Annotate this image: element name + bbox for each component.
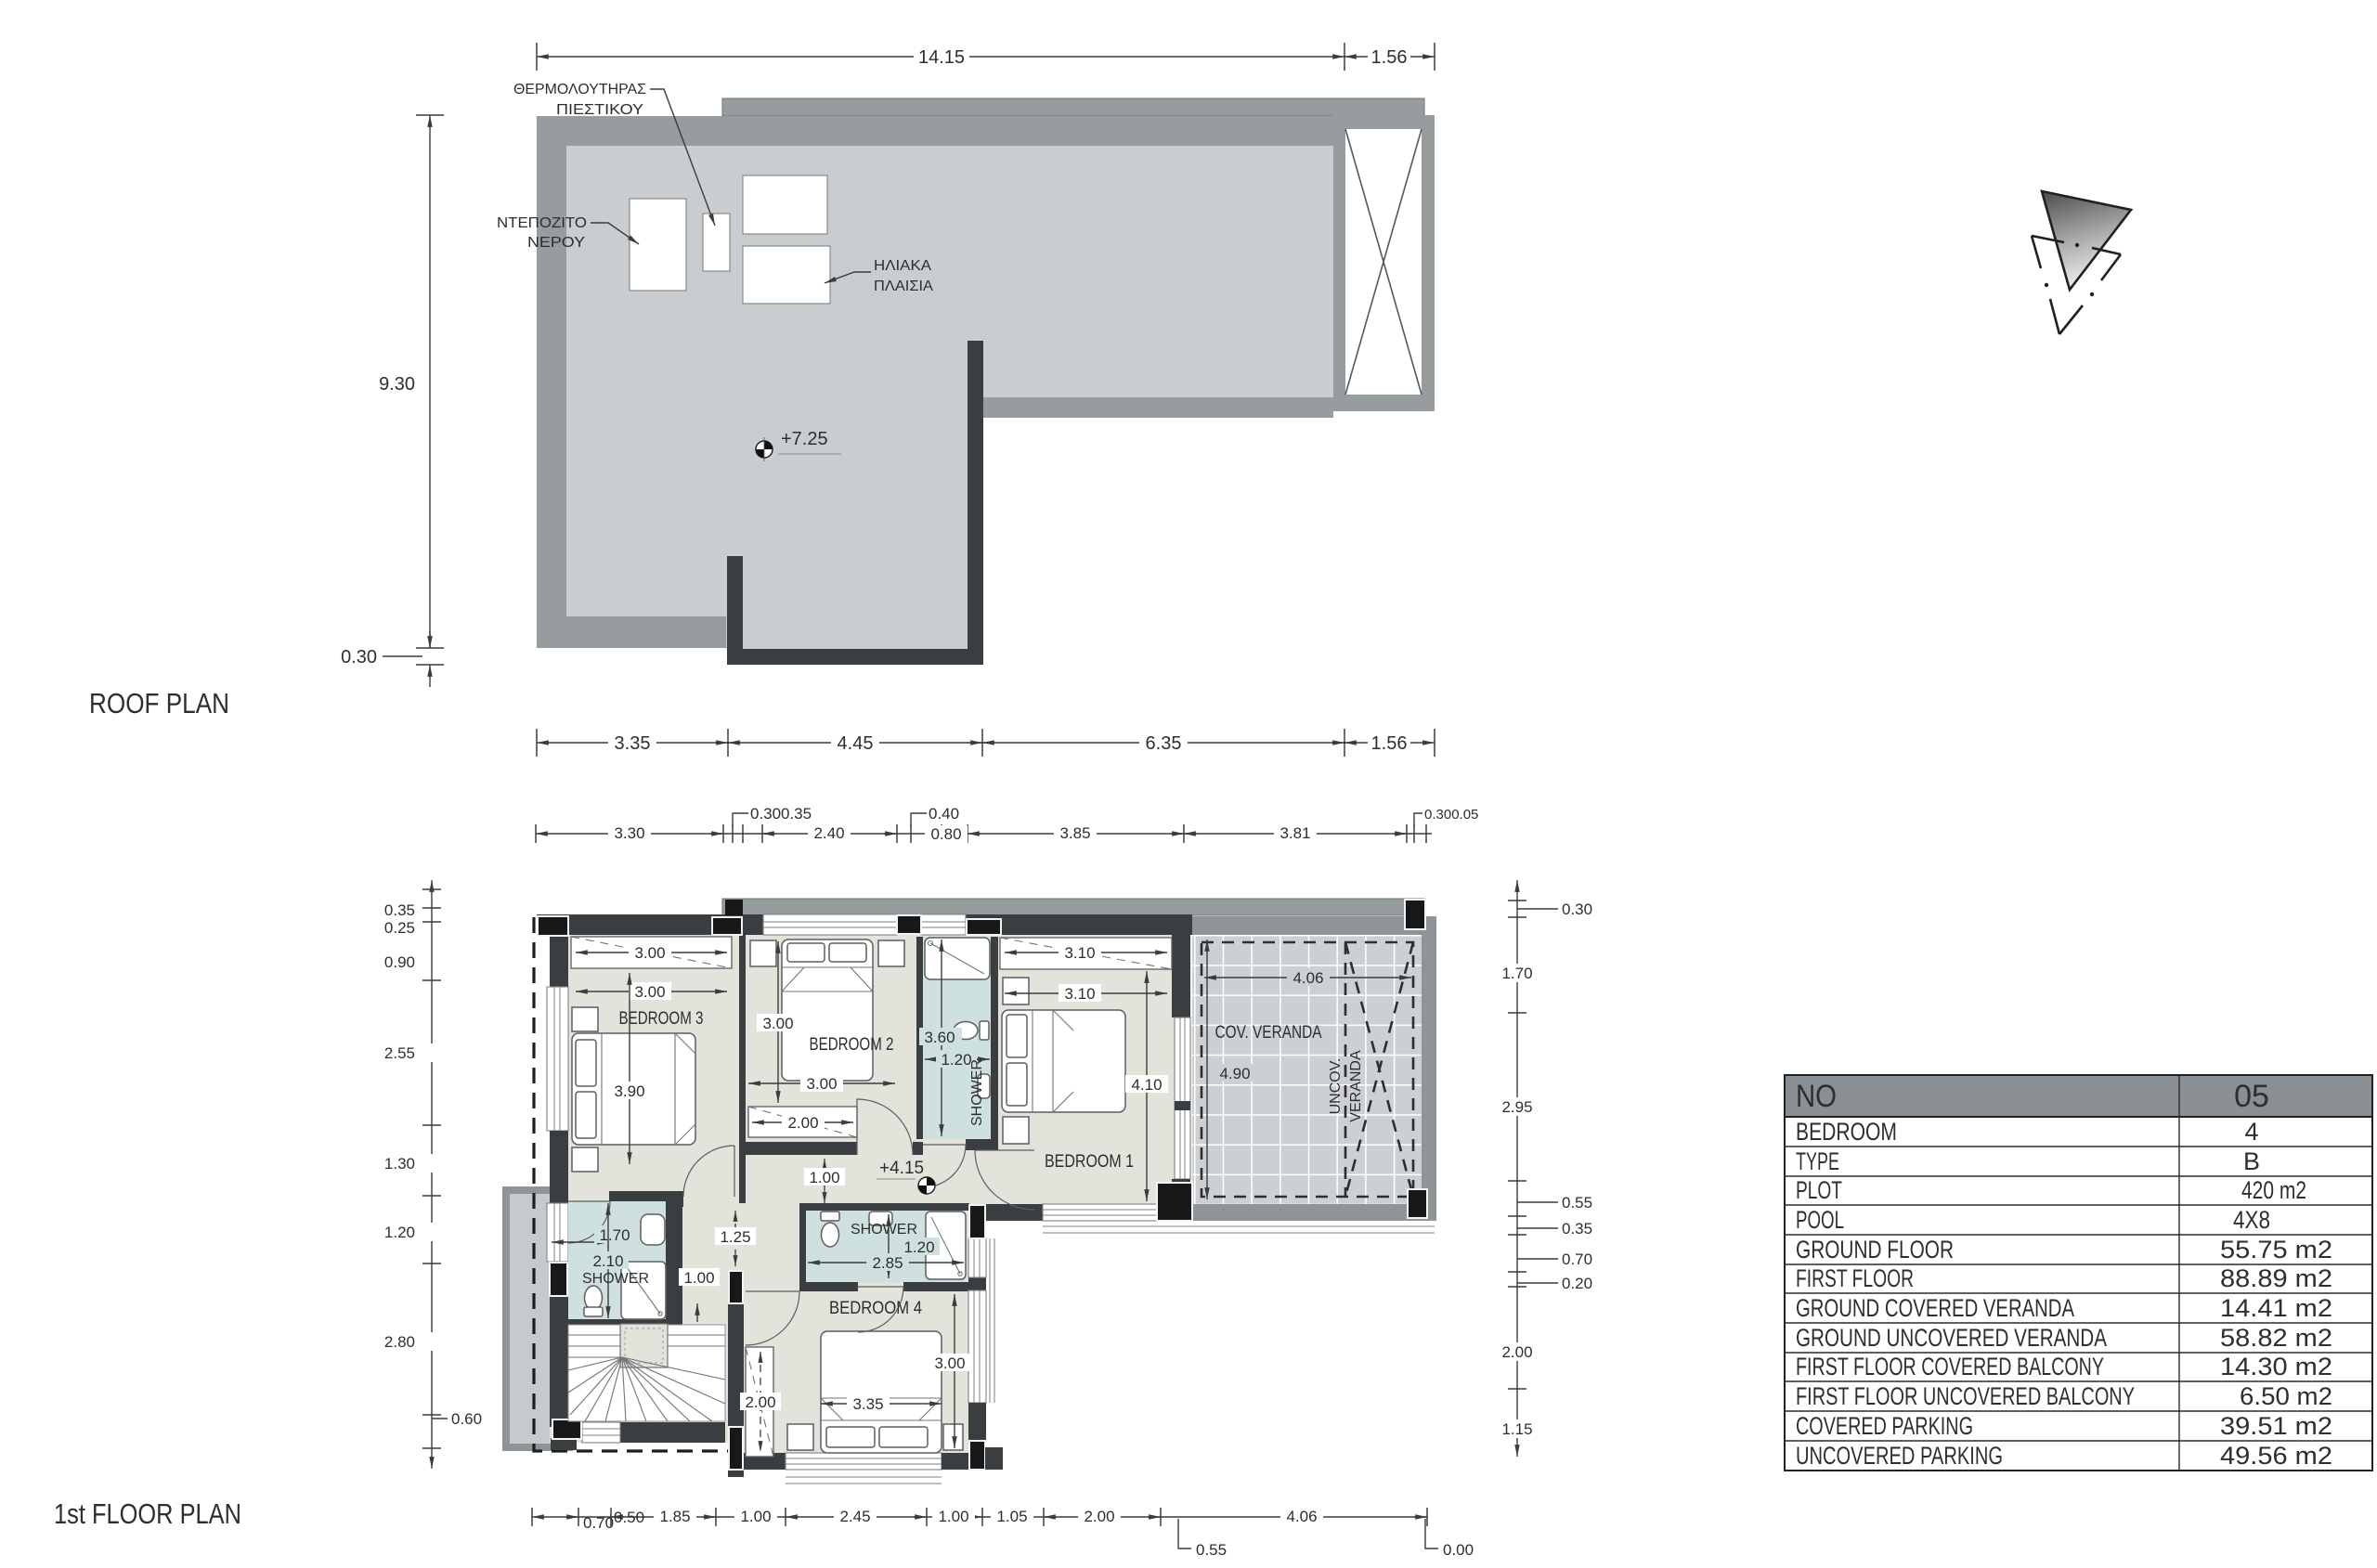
svg-text:+7.25: +7.25 (781, 429, 828, 449)
svg-text:1.15: 1.15 (1501, 1420, 1532, 1438)
svg-text:0.25: 0.25 (384, 919, 415, 937)
svg-text:+4.15: +4.15 (879, 1159, 924, 1178)
svg-text:BEDROOM 2: BEDROOM 2 (810, 1035, 894, 1055)
svg-text:4X8: 4X8 (2233, 1206, 2270, 1234)
svg-text:3.00: 3.00 (634, 944, 665, 962)
svg-text:3.35: 3.35 (615, 733, 651, 754)
svg-text:3.30: 3.30 (614, 824, 644, 842)
svg-text:49.56 m2: 49.56 m2 (2220, 1442, 2332, 1470)
svg-text:ΝΤΕΠΟΖΙΤΟ: ΝΤΕΠΟΖΙΤΟ (497, 215, 587, 231)
svg-text:6.50 m2: 6.50 m2 (2240, 1382, 2332, 1410)
svg-text:0.20: 0.20 (1562, 1275, 1592, 1292)
svg-text:COVERED PARKING: COVERED PARKING (1796, 1412, 1973, 1440)
svg-text:0.70: 0.70 (583, 1514, 614, 1532)
svg-text:SHOWER: SHOWER (851, 1222, 917, 1238)
svg-text:UNCOVERED PARKING: UNCOVERED PARKING (1796, 1442, 2003, 1470)
svg-text:POOL: POOL (1796, 1206, 1844, 1234)
svg-text:0.70: 0.70 (1562, 1251, 1592, 1268)
svg-text:SHOWER: SHOWER (969, 1059, 985, 1126)
svg-text:BEDROOM 1: BEDROOM 1 (1045, 1152, 1134, 1172)
svg-text:1.00: 1.00 (809, 1169, 839, 1186)
svg-text:ΠΛΑΙΣΙΑ: ΠΛΑΙΣΙΑ (874, 279, 933, 294)
svg-text:1.00: 1.00 (938, 1508, 968, 1525)
svg-text:FIRST FLOOR UNCOVERED BALCONY: FIRST FLOOR UNCOVERED BALCONY (1796, 1382, 2135, 1410)
svg-text:ΗΛΙΑΚΑ: ΗΛΙΑΚΑ (874, 258, 931, 274)
svg-text:3.81: 3.81 (1279, 824, 1310, 842)
svg-text:BEDROOM: BEDROOM (1796, 1118, 1897, 1146)
svg-text:14.41 m2: 14.41 m2 (2220, 1294, 2332, 1322)
svg-text:2.00: 2.00 (1084, 1508, 1114, 1525)
svg-text:3.00: 3.00 (634, 983, 665, 1001)
svg-text:PLOT: PLOT (1796, 1176, 1842, 1204)
svg-text:2.10: 2.10 (592, 1252, 623, 1270)
svg-text:3.00: 3.00 (762, 1015, 793, 1032)
svg-text:NO: NO (1796, 1079, 1837, 1114)
svg-text:1st FLOOR PLAN: 1st FLOOR PLAN (54, 1497, 241, 1530)
svg-text:0.55: 0.55 (1196, 1541, 1227, 1559)
svg-text:2.45: 2.45 (839, 1508, 870, 1525)
svg-text:4: 4 (2244, 1118, 2258, 1146)
svg-text:2.55: 2.55 (384, 1044, 415, 1062)
svg-text:COV. VERANDA: COV. VERANDA (1215, 1023, 1322, 1043)
svg-text:55.75 m2: 55.75 m2 (2220, 1236, 2332, 1263)
svg-text:2.80: 2.80 (384, 1333, 415, 1351)
svg-text:0.35: 0.35 (781, 805, 812, 823)
svg-text:0.300.05: 0.300.05 (1424, 807, 1478, 823)
svg-text:3.90: 3.90 (614, 1082, 644, 1100)
svg-text:1.20: 1.20 (384, 1224, 415, 1241)
svg-text:4.06: 4.06 (1292, 969, 1323, 987)
svg-text:3.85: 3.85 (1059, 824, 1090, 842)
svg-text:3.00: 3.00 (806, 1075, 837, 1093)
svg-text:0.00: 0.00 (1443, 1541, 1474, 1559)
svg-text:0.30: 0.30 (1562, 901, 1592, 918)
svg-text:B: B (2243, 1147, 2260, 1175)
svg-text:TYPE: TYPE (1796, 1147, 1839, 1175)
svg-text:1.00: 1.00 (740, 1508, 771, 1525)
svg-text:39.51 m2: 39.51 m2 (2220, 1412, 2332, 1440)
svg-text:1.30: 1.30 (384, 1155, 415, 1173)
svg-text:2.00: 2.00 (745, 1393, 775, 1411)
svg-text:FIRST FLOOR: FIRST FLOOR (1796, 1264, 1914, 1292)
svg-text:4.45: 4.45 (838, 733, 874, 754)
svg-text:1.56: 1.56 (1371, 733, 1408, 754)
svg-text:0.60: 0.60 (451, 1410, 482, 1428)
svg-text:05: 05 (2234, 1079, 2269, 1114)
svg-text:UNCOV.: UNCOV. (1328, 1058, 1344, 1115)
svg-text:3.10: 3.10 (1064, 985, 1095, 1003)
svg-text:88.89 m2: 88.89 m2 (2220, 1264, 2332, 1292)
svg-text:2.85: 2.85 (872, 1254, 903, 1272)
svg-text:1.70: 1.70 (1501, 965, 1532, 982)
svg-text:0.50: 0.50 (614, 1509, 644, 1526)
svg-text:14.30 m2: 14.30 m2 (2220, 1353, 2332, 1380)
svg-text:VERANDA: VERANDA (1348, 1050, 1364, 1122)
svg-text:14.15: 14.15 (918, 47, 965, 68)
svg-text:3.35: 3.35 (852, 1395, 883, 1413)
svg-text:ΝΕΡΟΥ: ΝΕΡΟΥ (527, 235, 585, 251)
svg-text:0.30: 0.30 (341, 647, 377, 667)
svg-text:420 m2: 420 m2 (2241, 1176, 2306, 1204)
svg-text:1.56: 1.56 (1371, 47, 1408, 68)
svg-text:0.55: 0.55 (1562, 1194, 1592, 1212)
svg-text:1.20: 1.20 (941, 1051, 971, 1069)
svg-text:1.00: 1.00 (683, 1269, 714, 1287)
svg-text:0.35: 0.35 (384, 901, 415, 919)
svg-text:GROUND COVERED VERANDA: GROUND COVERED VERANDA (1796, 1294, 2074, 1322)
svg-text:2.00: 2.00 (1501, 1343, 1532, 1361)
svg-text:0.80: 0.80 (930, 825, 961, 843)
svg-text:BEDROOM 3: BEDROOM 3 (619, 1009, 704, 1029)
svg-text:6.35: 6.35 (1146, 733, 1182, 754)
svg-text:4.90: 4.90 (1219, 1065, 1250, 1082)
svg-text:SHOWER: SHOWER (582, 1271, 649, 1287)
svg-text:2.00: 2.00 (787, 1114, 818, 1132)
svg-text:1.70: 1.70 (599, 1226, 630, 1244)
svg-text:ROOF PLAN: ROOF PLAN (89, 687, 229, 719)
svg-text:4.06: 4.06 (1286, 1508, 1317, 1525)
svg-text:9.30: 9.30 (379, 374, 415, 395)
svg-text:GROUND UNCOVERED VERANDA: GROUND UNCOVERED VERANDA (1796, 1324, 2107, 1352)
svg-text:1.05: 1.05 (996, 1508, 1027, 1525)
svg-text:1.25: 1.25 (720, 1228, 750, 1246)
svg-text:1.85: 1.85 (659, 1508, 690, 1525)
svg-text:2.40: 2.40 (813, 824, 844, 842)
svg-text:58.82 m2: 58.82 m2 (2220, 1324, 2332, 1352)
svg-text:BEDROOM 4: BEDROOM 4 (829, 1299, 922, 1318)
svg-text:GROUND FLOOR: GROUND FLOOR (1796, 1236, 1954, 1263)
svg-text:0.40: 0.40 (929, 805, 959, 823)
svg-text:0.35: 0.35 (1562, 1220, 1592, 1238)
svg-text:3.60: 3.60 (924, 1029, 955, 1046)
svg-text:2.95: 2.95 (1501, 1098, 1532, 1116)
svg-text:ΠΙΕΣΤΙΚΟΥ: ΠΙΕΣΤΙΚΟΥ (556, 102, 643, 118)
svg-text:FIRST FLOOR COVERED BALCONY: FIRST FLOOR COVERED BALCONY (1796, 1353, 2104, 1380)
svg-text:3.00: 3.00 (934, 1354, 965, 1372)
svg-text:0.90: 0.90 (384, 953, 415, 971)
svg-text:ΘΕΡΜΟΛΟΥΤΗΡΑΣ: ΘΕΡΜΟΛΟΥΤΗΡΑΣ (513, 82, 646, 97)
svg-text:0.30: 0.30 (750, 805, 781, 823)
svg-text:4.10: 4.10 (1131, 1076, 1162, 1094)
svg-text:3.10: 3.10 (1064, 944, 1095, 962)
